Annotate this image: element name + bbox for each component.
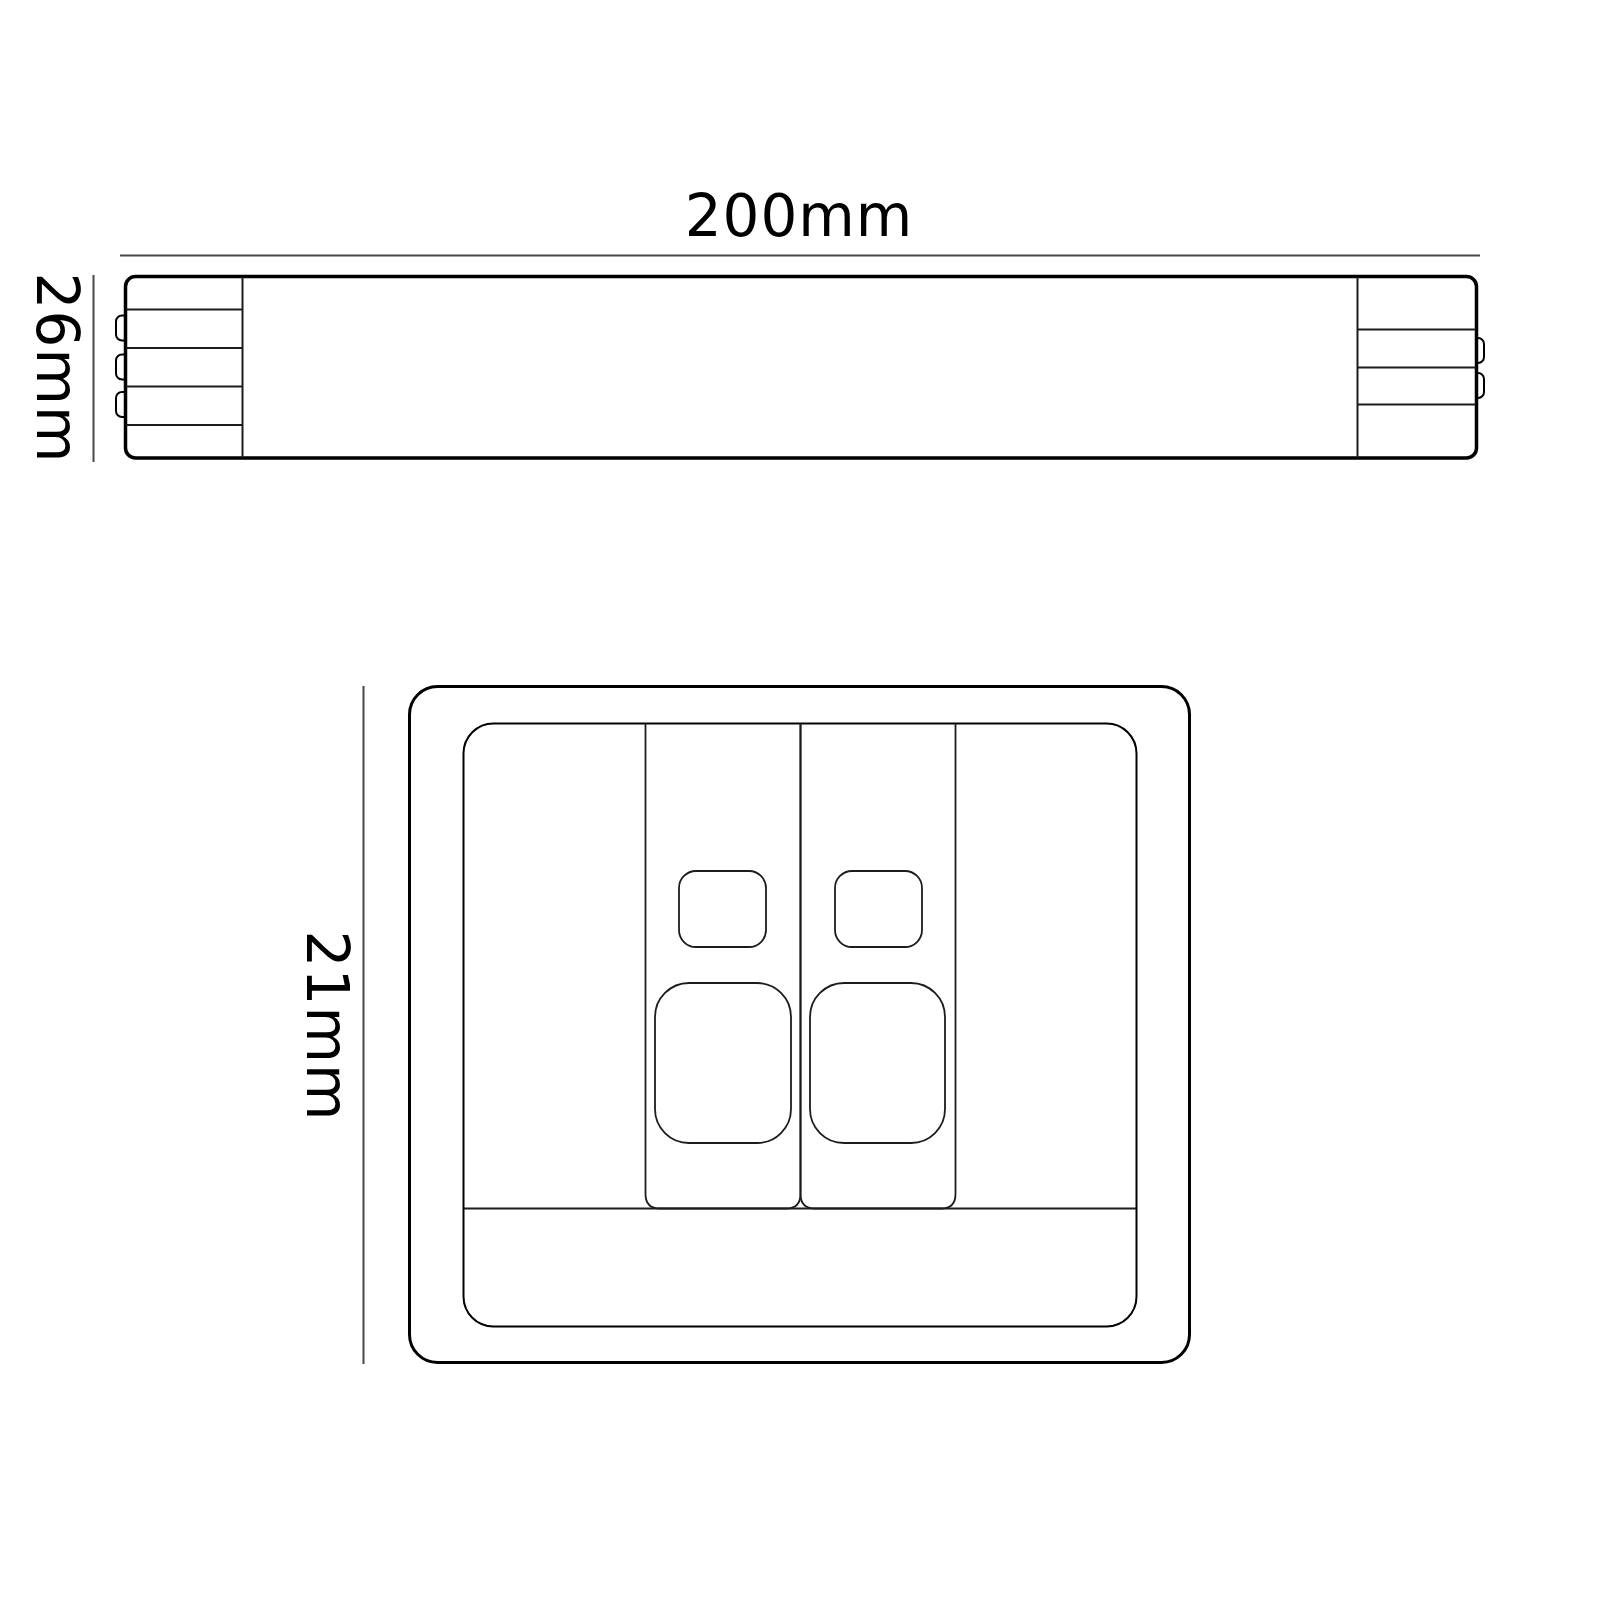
drawing-canvas: 200mm 26mm bbox=[0, 0, 1600, 1600]
side-view: 200mm 26mm bbox=[23, 182, 1484, 463]
width-dimension-label: 200mm bbox=[685, 182, 914, 250]
technical-drawing: 200mm 26mm bbox=[0, 0, 1600, 1600]
front-view: 21mm bbox=[293, 686, 1190, 1364]
faceplate-outer-outline bbox=[410, 687, 1190, 1363]
front-height-dimension-label: 21mm bbox=[293, 931, 361, 1122]
side-body-outline bbox=[126, 277, 1477, 459]
side-depth-dimension-label: 26mm bbox=[23, 273, 91, 464]
